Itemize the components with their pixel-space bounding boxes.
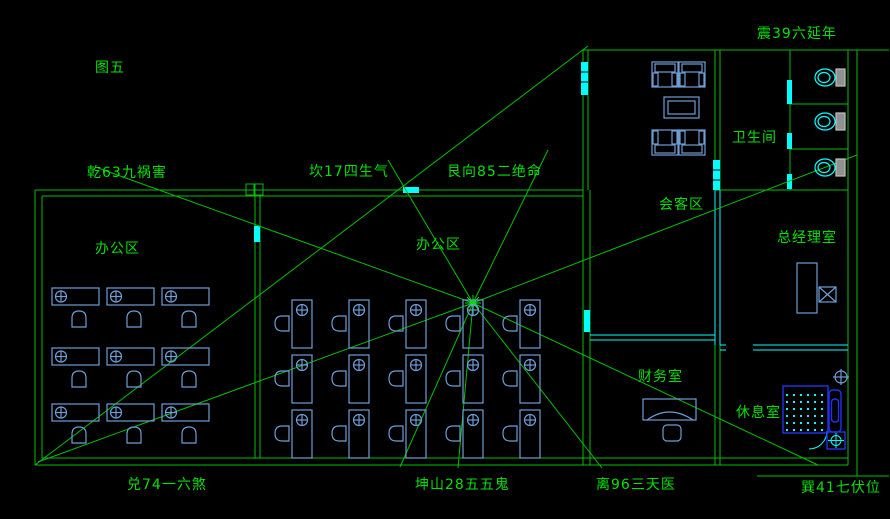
room-label-rest: 休息室 bbox=[736, 404, 781, 421]
desk bbox=[162, 404, 209, 443]
desk bbox=[446, 410, 483, 458]
desk bbox=[389, 300, 426, 348]
door-swing-arc bbox=[809, 431, 827, 449]
desk bbox=[52, 348, 99, 387]
coffee-table bbox=[664, 97, 699, 118]
desk bbox=[332, 355, 369, 403]
cad-canvas: 图五 震39六延年 乾63九祸害 坎17四生气 艮向85二绝命 兑74一六煞 坤… bbox=[0, 0, 890, 519]
sofa bbox=[679, 130, 705, 155]
compass-label-zhen: 震39六延年 bbox=[757, 26, 837, 42]
room-label-office-left: 办公区 bbox=[95, 241, 140, 257]
desk bbox=[162, 348, 209, 387]
desk bbox=[275, 355, 312, 403]
room-label-bathroom: 卫生间 bbox=[732, 130, 777, 146]
stall-door-marker bbox=[787, 133, 792, 149]
desk bbox=[107, 288, 154, 327]
manager-desk bbox=[797, 263, 836, 313]
desk bbox=[52, 404, 99, 443]
window-marker bbox=[254, 226, 260, 242]
compass-label-kan: 坎17四生气 bbox=[309, 164, 389, 180]
room-label-gm-office: 总经理室 bbox=[777, 229, 837, 246]
desk bbox=[503, 355, 540, 403]
floorplan-drawing: 图五 震39六延年 乾63九祸害 坎17四生气 艮向85二绝命 兑74一六煞 坤… bbox=[0, 0, 890, 519]
room-label-office-mid: 办公区 bbox=[416, 237, 461, 253]
window-marker bbox=[581, 62, 588, 95]
desk bbox=[446, 300, 483, 348]
compass-label-xun: 巽41七伏位 bbox=[801, 480, 881, 496]
compass-label-dui: 兑74一六煞 bbox=[127, 477, 207, 493]
fengshui-lines bbox=[35, 46, 857, 468]
desk bbox=[332, 410, 369, 458]
desk bbox=[503, 410, 540, 458]
wall-fixture-cross bbox=[833, 369, 849, 385]
window-marker bbox=[713, 160, 720, 190]
partition-walls-cyan bbox=[590, 190, 848, 350]
shower-unit bbox=[783, 386, 845, 449]
desk bbox=[275, 410, 312, 458]
compass-label-gen: 艮向85二绝命 bbox=[447, 163, 542, 180]
desk bbox=[332, 300, 369, 348]
room-label-finance: 财务室 bbox=[638, 368, 683, 385]
desk bbox=[107, 404, 154, 443]
toilet-icon bbox=[815, 159, 845, 176]
desk bbox=[389, 355, 426, 403]
desk bbox=[107, 348, 154, 387]
desk bbox=[503, 300, 540, 348]
desk bbox=[52, 288, 99, 327]
sofa bbox=[652, 62, 678, 87]
floor-drain bbox=[827, 432, 845, 449]
desk bbox=[275, 300, 312, 348]
labels-layer: 图五 震39六延年 乾63九祸害 坎17四生气 艮向85二绝命 兑74一六煞 坤… bbox=[87, 26, 881, 496]
sofa bbox=[652, 130, 678, 155]
compass-label-qian: 乾63九祸害 bbox=[87, 165, 167, 181]
window-door-markers bbox=[254, 62, 792, 332]
room-label-meeting: 会客区 bbox=[659, 196, 704, 213]
desk bbox=[162, 288, 209, 327]
compass-label-kunshan: 坤山28五五鬼 bbox=[415, 477, 510, 493]
compass-label-li: 离96三天医 bbox=[596, 476, 676, 493]
furniture-layer bbox=[52, 62, 849, 458]
sofa bbox=[679, 62, 705, 87]
door-marker bbox=[584, 310, 590, 332]
figure-title: 图五 bbox=[95, 60, 125, 76]
stall-door-marker bbox=[787, 80, 792, 104]
toilet-icon bbox=[815, 69, 845, 86]
finance-desk bbox=[643, 399, 696, 441]
toilet-icon bbox=[815, 113, 845, 130]
